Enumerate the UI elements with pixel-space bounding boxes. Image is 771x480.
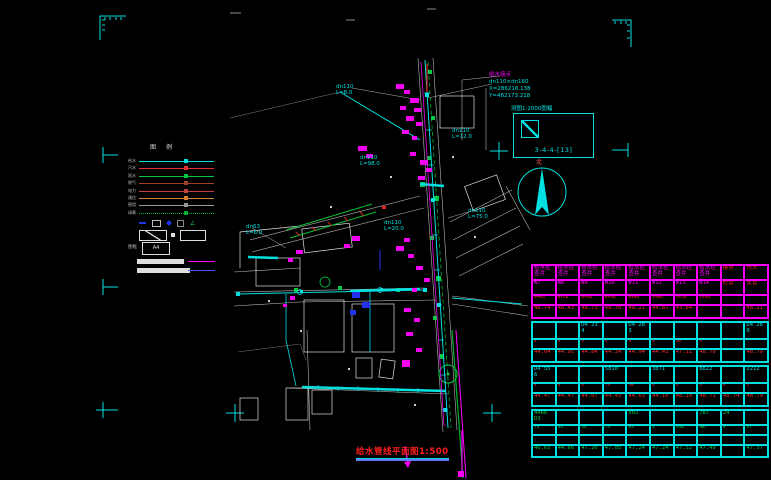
table-cell: [556, 322, 580, 339]
table-cell: 4: [556, 339, 580, 349]
legend-line-sample: [139, 205, 214, 206]
legend-row-label: 电力: [128, 188, 136, 194]
table-cell: 给水检查井: [650, 265, 674, 280]
legend-row: 围墙: [128, 202, 216, 209]
table-cell: [697, 322, 721, 339]
table-cell: 给水检查井: [626, 265, 650, 280]
table-cell: 69: [626, 425, 650, 435]
table-cell: 9: [721, 425, 745, 435]
table-cell: 79: [532, 425, 556, 435]
table-cell: 给水检查井: [556, 265, 580, 280]
legend-marker-icon: [184, 196, 188, 200]
connection-name: 给水接点: [489, 72, 531, 79]
table-cell: W8: [556, 280, 580, 295]
table-cell: 46.65: [532, 445, 556, 457]
table-cell: 47.26: [579, 445, 603, 457]
table-cell: 4: [626, 339, 650, 349]
legend-line-sample: [139, 183, 214, 184]
table-cell: 502: [626, 410, 650, 425]
table-cell: 4: [532, 383, 556, 393]
table-cell: 1+06: [650, 295, 674, 305]
table-cell: 43.84: [674, 305, 698, 318]
legend-row: 燃气: [128, 180, 216, 187]
legend-row-label: 给水: [128, 158, 136, 164]
table-cell: 47.57: [744, 445, 768, 457]
table-cell: 1+46: [697, 295, 721, 305]
table-cell: 给水检查井: [697, 265, 721, 280]
table-cell: 47.24: [626, 445, 650, 457]
table-cell: 4: [721, 383, 745, 393]
legend-marker-icon: [184, 189, 188, 193]
legend-line-sample: [139, 198, 214, 199]
table-cell: [603, 435, 627, 445]
table-cell: 40: [626, 383, 650, 393]
table-cell: 44.94: [626, 349, 650, 362]
table-cell: [579, 410, 603, 425]
legend-marker-icon: [184, 181, 188, 185]
table-cell: 48.73: [579, 305, 603, 318]
table-cell: 5810: [603, 366, 627, 383]
table-cell: 4: [532, 339, 556, 349]
table-section: 给水检查井给水检查井给水检查井给水检查井给水检查井给水检查井给水检查井给水检查井…: [531, 264, 769, 319]
legend-line-sample: [139, 168, 214, 169]
table-cell: 44.84: [579, 349, 603, 362]
table-cell: 47.24: [650, 445, 674, 457]
table-cell: 44.47: [556, 393, 580, 406]
box-symbol-icon: [152, 220, 161, 227]
table-cell: 2212: [744, 366, 768, 383]
table-cell: 0+66: [603, 295, 627, 305]
legend-row: 雨水: [128, 173, 216, 180]
table-cell: [556, 410, 580, 425]
table-cell: 48.10: [674, 393, 698, 406]
legend-row: 电力: [128, 188, 216, 195]
magenta-line-sample: [188, 261, 215, 262]
table-cell: [674, 410, 698, 425]
table-cell: 94: [556, 425, 580, 435]
table-cell: [650, 322, 674, 339]
table-cell: 0+86: [626, 295, 650, 305]
legend-marker-icon: [184, 211, 188, 215]
table-cell: 48.21: [626, 305, 650, 318]
dash-symbol-icon: [139, 222, 146, 224]
pipe-label: dn110 L=75.0: [468, 208, 488, 220]
table-cell: 8822: [697, 366, 721, 383]
table-cell: W11: [626, 280, 650, 295]
table-cell: 48.21: [744, 305, 768, 318]
table-cell: 48.43: [556, 305, 580, 318]
table-cell: [721, 435, 745, 445]
table-cell: 砼管: [721, 280, 745, 295]
table-cell: [650, 410, 674, 425]
table-cell: [579, 435, 603, 445]
table-cell: 4: [579, 383, 603, 393]
rect-symbol-icon: [180, 230, 206, 241]
legend-row: 通信: [128, 195, 216, 202]
table-cell: 4: [556, 383, 580, 393]
table-cell: [721, 322, 745, 339]
table-section: 4466 D3502787247994497469439098799746.65…: [531, 409, 769, 458]
table-cell: 4: [650, 339, 674, 349]
table-cell: 4466 D3: [532, 410, 556, 425]
table-cell: D4 283: [626, 322, 650, 339]
legend-bar: [137, 268, 190, 273]
cad-canvas[interactable]: 北 给水接点 dn110×dn160 X=286216.138 Y=482173…: [0, 0, 771, 480]
legend-row: 污水: [128, 165, 216, 172]
table-cell: 44.10: [650, 393, 674, 406]
table-cell: 4: [650, 425, 674, 435]
table-cell: 支管: [744, 280, 768, 295]
table-cell: 4: [674, 383, 698, 393]
table-cell: 44.34: [603, 349, 627, 362]
table-cell: 给水检查井: [603, 265, 627, 280]
table-cell: 3871: [650, 366, 674, 383]
frame-ticks: [230, 9, 436, 20]
table-cell: 44.66: [556, 445, 580, 457]
table-cell: 49: [579, 425, 603, 435]
table-cell: [721, 295, 745, 305]
connection-note: 给水接点 dn110×dn160 X=286216.138 Y=482173.2…: [489, 72, 531, 100]
table-cell: 给水检查井: [674, 265, 698, 280]
small-square-icon: [171, 233, 175, 237]
table-cell: [721, 349, 745, 362]
table-cell: 4: [697, 383, 721, 393]
diamond-symbol-icon: [166, 220, 172, 226]
table-cell: 4: [603, 339, 627, 349]
table-cell: W9: [579, 280, 603, 295]
table-cell: [674, 322, 698, 339]
table-cell: [603, 322, 627, 339]
table-cell: 0+26: [556, 295, 580, 305]
roads-layer: [230, 58, 530, 432]
legend-marker-icon: [184, 203, 188, 207]
table-cell: [744, 410, 768, 425]
table-cell: [697, 305, 721, 318]
table-cell: [556, 366, 580, 383]
table-cell: 47.05: [603, 445, 627, 457]
square-symbol-icon: [177, 220, 184, 227]
north-label: 北: [536, 157, 542, 166]
table-cell: 74: [603, 383, 627, 393]
table-cell: 47.11: [674, 349, 698, 362]
table-section: D4 556581038718822221244474404444444.474…: [531, 365, 769, 407]
legend-row-label: 雨水: [128, 173, 136, 179]
connection-x: X=286216.138: [489, 86, 531, 93]
table-cell: 47.52: [674, 445, 698, 457]
buildings-layer: [240, 96, 505, 420]
pipe-data-table: 给水检查井给水检查井给水检查井给水检查井给水检查井给水检查井给水检查井给水检查井…: [531, 264, 769, 460]
table-cell: [579, 366, 603, 383]
table-cell: 44.87: [650, 305, 674, 318]
legend-row-label: 围墙: [128, 202, 136, 208]
frame-size-box: A4: [142, 242, 170, 255]
table-cell: 4: [650, 383, 674, 393]
legend-panel: 图例 给水污水雨水燃气电力通信围墙绿篱 ∠ 图框 A4: [128, 142, 220, 274]
table-cell: [674, 435, 698, 445]
table-cell: 390: [674, 425, 698, 435]
table-cell: [556, 435, 580, 445]
table-cell: [721, 445, 745, 457]
table-cell: D4 234: [579, 322, 603, 339]
pipe-label: dn110 L=98.0: [360, 155, 380, 167]
slope-symbol-icon: [139, 230, 167, 241]
table-cell: [697, 435, 721, 445]
table-section: D4 234D4 283D4 28044444440444.0444.9544.…: [531, 321, 769, 363]
map-sheet-note: 测图1:2000图幅: [511, 104, 552, 112]
table-cell: [532, 322, 556, 339]
pipe-label: dn110 L=8.0: [336, 84, 353, 96]
table-cell: W10: [603, 280, 627, 295]
legend-marker-icon: [184, 174, 188, 178]
table-cell: [650, 435, 674, 445]
table-cell: 48.71: [697, 393, 721, 406]
table-cell: 987: [697, 425, 721, 435]
table-cell: 44.47: [532, 393, 556, 406]
table-cell: 44.95: [556, 349, 580, 362]
legend-marker-icon: [184, 166, 188, 170]
angle-symbol-icon: ∠: [190, 220, 195, 227]
table-cell: 48.74: [721, 393, 745, 406]
table-cell: 48.76: [603, 305, 627, 318]
table-cell: [721, 339, 745, 349]
table-cell: 44.07: [579, 393, 603, 406]
table-cell: 接点: [721, 265, 745, 280]
legend-row-label: 污水: [128, 165, 136, 171]
legend-bar: [137, 259, 184, 264]
legend-marker-icon: [184, 159, 188, 163]
drawing-title: 给水管线平面图1:500: [356, 445, 449, 459]
table-cell: 44.63: [626, 393, 650, 406]
hatch-square-icon: [521, 120, 539, 138]
frame-label: 图框: [128, 244, 137, 250]
legend-row-label: 通信: [128, 195, 136, 201]
table-cell: 甩头: [744, 265, 768, 280]
table-cell: 48.79: [744, 393, 768, 406]
legend-row: 绿篱: [128, 210, 216, 217]
table-cell: 44.41: [650, 349, 674, 362]
table-cell: 48.74: [532, 305, 556, 318]
table-cell: 44.43: [603, 393, 627, 406]
connection-y: Y=482173.218: [489, 93, 531, 100]
connection-size: dn110×dn160: [489, 79, 531, 86]
table-cell: [626, 366, 650, 383]
sheet-index: 3-4-4-[13]: [514, 146, 593, 154]
table-cell: 0+46: [579, 295, 603, 305]
table-cell: 4: [744, 383, 768, 393]
table-cell: 给水检查井: [532, 265, 556, 280]
table-cell: W12: [650, 280, 674, 295]
table-cell: 4: [579, 339, 603, 349]
legend-row: 给水: [128, 158, 216, 165]
table-cell: 48.79: [697, 349, 721, 362]
table-cell: [721, 305, 745, 318]
legend-line-sample: [139, 213, 214, 214]
table-cell: 4: [697, 339, 721, 349]
table-cell: [744, 435, 768, 445]
table-cell: W7: [532, 280, 556, 295]
table-cell: [626, 435, 650, 445]
table-cell: 74: [603, 425, 627, 435]
pipe-label: dn110 L=20.0: [384, 220, 404, 232]
legend-line-sample: [139, 176, 214, 177]
table-cell: [674, 366, 698, 383]
table-cell: D4 556: [532, 366, 556, 383]
table-cell: 40: [674, 339, 698, 349]
table-cell: 1+26: [674, 295, 698, 305]
legend-symbols-row: ∠: [139, 219, 219, 227]
table-cell: W14: [697, 280, 721, 295]
map-index-box: 3-4-4-[13]: [513, 113, 594, 158]
table-cell: W13: [674, 280, 698, 295]
table-cell: [744, 295, 768, 305]
legend-row-label: 绿篱: [128, 210, 136, 216]
north-arrow-icon: [518, 168, 566, 216]
table-cell: 48.79: [744, 349, 768, 362]
legend-line-sample: [139, 191, 214, 192]
pipe-label: dn110 L=12.0: [452, 128, 472, 140]
legend-line-sample: [139, 161, 214, 162]
table-cell: 44.04: [532, 349, 556, 362]
table-cell: [603, 410, 627, 425]
table-cell: [532, 435, 556, 445]
table-cell: [721, 366, 745, 383]
table-cell: 给水检查井: [579, 265, 603, 280]
table-cell: [744, 339, 768, 349]
table-cell: D4 280: [744, 322, 768, 339]
table-cell: 787: [697, 410, 721, 425]
pipe-label: dn63 L=6.0: [246, 224, 262, 236]
table-cell: 47.49: [697, 445, 721, 457]
blue-line-sample: [188, 270, 215, 271]
table-cell: 0+06: [532, 295, 556, 305]
table-cell: 24: [721, 410, 745, 425]
table-cell: 97: [744, 425, 768, 435]
legend-title: 图例: [150, 142, 182, 151]
legend-row-label: 燃气: [128, 180, 136, 186]
